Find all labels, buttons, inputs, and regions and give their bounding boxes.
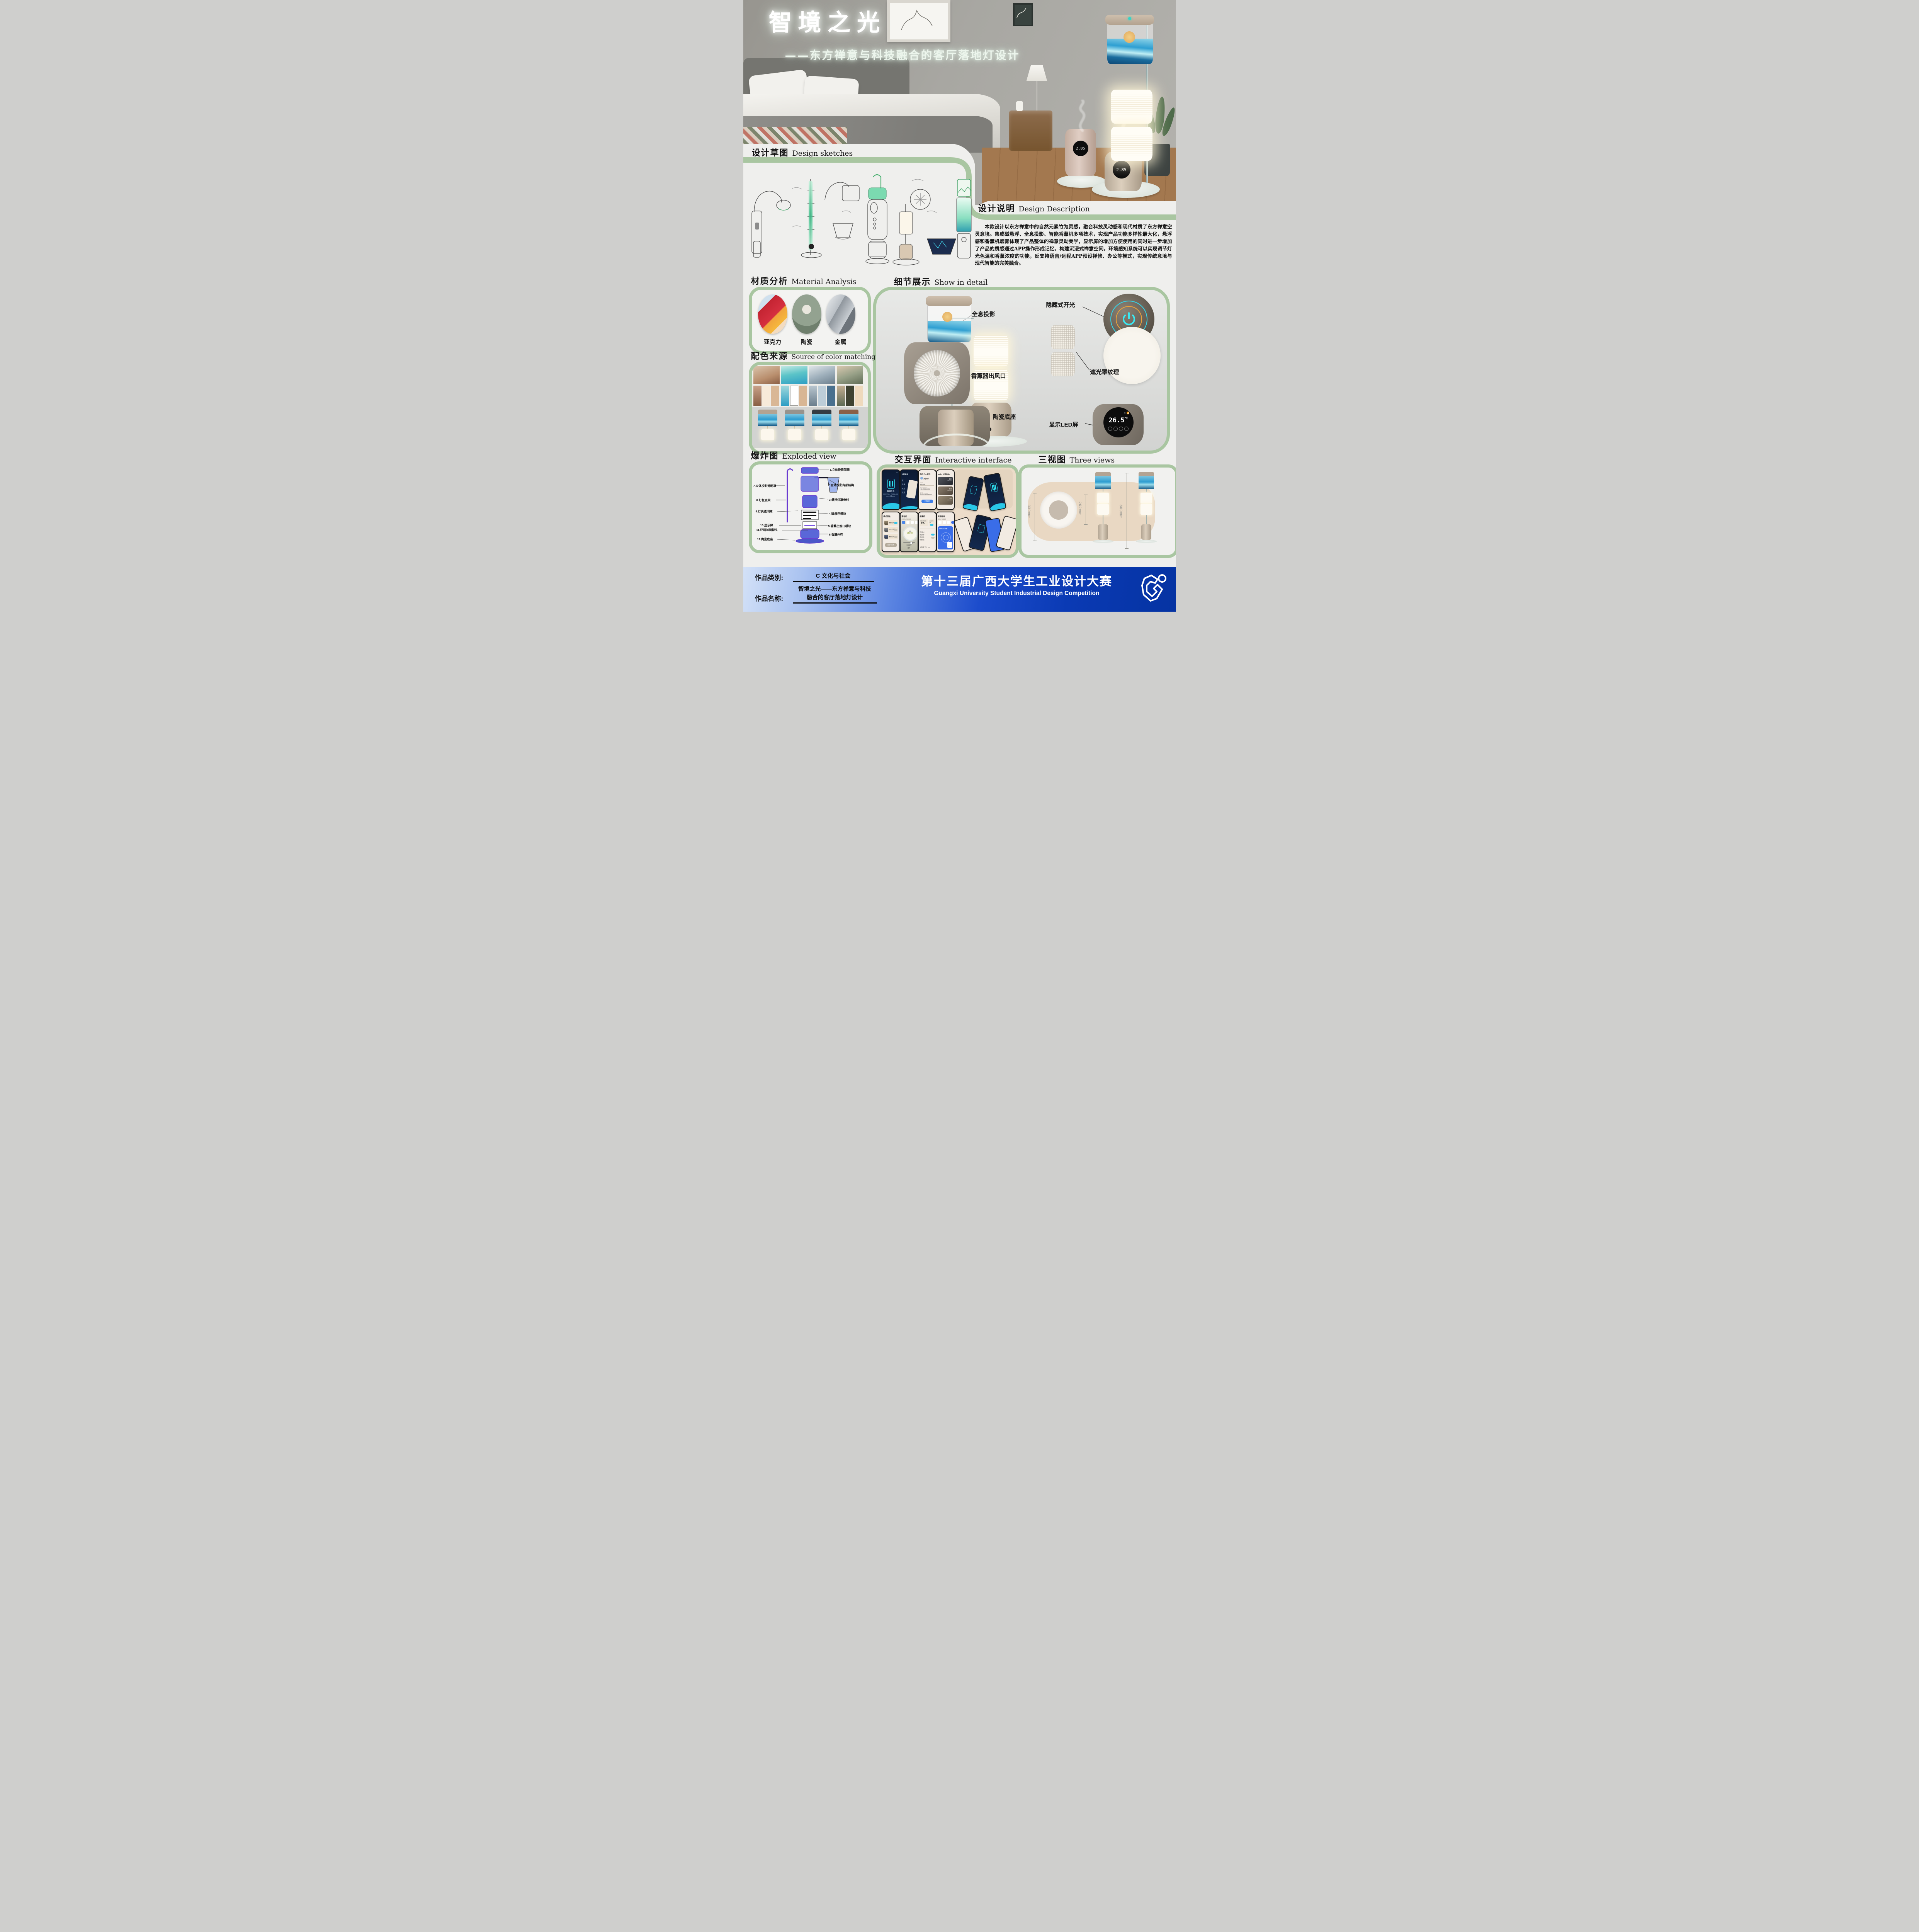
part-12: 12.陶瓷底座 [757,537,773,541]
room-card: 客厅 4 Devices [938,477,953,485]
swatch [790,386,798,406]
aroma-mode-rows: 工作模式感应喷香定时喷香喷香浓度 [920,531,925,541]
views-header: 三视图 Three views [1039,453,1115,465]
shade-texture-cylinder [1051,325,1075,349]
dim-330mm: 330mm [1027,505,1031,519]
aroma-title: 香薰机 [920,515,925,518]
swatch [827,386,835,406]
detail-holo-cylinder [927,301,971,342]
competition-title-en: Guangxi University Student Industrial De… [901,590,1133,597]
profile-title: 我的个人资料 [920,473,931,476]
radar-panel: 搜索附近的设备... Mi Cam [938,526,953,549]
detail-shade-upper [974,335,1008,366]
colors-title-zh: 配色来源 [751,349,788,362]
detail-label-aroma-outlet: 香薰器出风口 [971,372,1006,380]
material-label-acrylic: 亚克力 [758,338,787,346]
field-value: +98-19698612368 [920,488,934,490]
poster-title: 智境之光 [769,4,886,37]
phone-collage-top [955,469,1013,509]
description-title-zh: 设计说明 [978,202,1015,214]
lamp-shade-upper [1111,90,1152,124]
interface-title-zh: 交互界面 [895,453,932,465]
detail-label-shade-texture: 遮光罩纹理 [1090,368,1119,376]
poster-subtitle: ——东方禅意与科技融合的客厅落地灯设计 [785,46,1020,63]
details-panel: ☀ 📶 26.5℃ 全息投影 隐藏式开光 香薰器出风口 遮光罩纹理 陶瓷底座 显… [873,287,1170,454]
app-screen-home: Hello, 大猛同学! 客厅 4 Devices 卧室 4 Devices 书… [936,469,955,510]
exploded-header: 爆炸图 Exploded view [751,449,836,461]
bamboo-logo-icon [887,479,895,489]
swatch [846,386,854,406]
part-8: 8.灯杠支架 [756,498,771,502]
name-label: 作品名称: [755,593,784,603]
poster-root: 2.85 2.85 智境之光 ——东方禅意与科技融合的客厅落地灯设计 设计草图 … [743,0,1176,612]
devices-sub: 共有4个源器件 [938,518,946,520]
swatch-photo [809,386,817,406]
category-value: C 文化与社会 [793,571,874,580]
app-name: 智镜之光 [882,490,899,493]
color-temp-dial: 色温 3500K [903,526,918,541]
part-5: 5.香薰出烟口模块 [828,524,852,528]
device-icon-row [938,521,954,524]
phone-collage-bottom [955,512,1013,551]
lamp-variant-gray [785,410,804,440]
ceramic-base-closeup [920,406,990,446]
material-label-metal: 金属 [826,338,855,346]
color-photo-sea [781,366,807,384]
table-lamp-rod [1037,81,1037,111]
interface-header: 交互界面 Interactive interface [895,453,1012,465]
vase [1016,101,1023,111]
materials-title-en: Material Analysis [792,277,857,286]
detail-top-cap [926,296,972,306]
dim-line-330 [1035,493,1035,541]
auto-label: 自动 [901,547,918,549]
details-title-en: Show in detail [935,278,988,287]
color-photo-valley [837,366,863,384]
sketches-title-zh: 设计草图 [752,146,789,158]
app-screen-aroma: 香薰机 室内空气质量 80% 设备开关 ON 工作模式感应喷香定时喷香喷香浓度 … [918,512,937,552]
part-1: 1.立体投影顶盖 [830,468,850,472]
lamp-variant-beige [758,410,777,440]
avatar [920,477,923,480]
swatch [855,386,863,406]
competition-logo [1134,571,1169,607]
work-name-line2: 融合的客厅落地灯设计 [793,593,877,601]
swatch [762,386,770,406]
led-status-icons: ☀ 📶 [1107,412,1130,415]
profile-submit-button: 完成编辑 [921,500,933,503]
app-tagline2: 禅意与科技的世界 [883,496,899,497]
menu-items: 家设备成员设置 [902,479,905,495]
devices-title: 有源器件 [938,515,945,518]
collage-phone-dark [983,473,1006,512]
led-display-device: ☀ 📶 26.5℃ [1093,404,1144,445]
details-header: 细节展示 Show in detail [894,275,988,287]
views-title-en: Three views [1070,456,1115,464]
mode-row: 办公/学习模式 [884,527,898,532]
mist-count: 今日喷雾（次） 80 [920,546,930,548]
part-3: 3.悬挂灯罩电线 [829,498,849,502]
device-icon-row [902,521,918,524]
home-greeting: Hello, 大猛同学! [938,473,950,476]
table-lamp [1027,65,1047,81]
led-temperature: 26.5℃ [1103,417,1134,424]
display-value: 2.85 [1116,167,1127,172]
hologram-sun [1124,31,1135,43]
detail-label-hidden-switch: 隐藏式开光 [1046,301,1075,309]
menu-user: 大猛同学 [902,473,908,476]
colors-box [749,362,871,454]
part-10: 10.显示屏 [760,523,773,527]
skip-link: SKIP [896,471,899,473]
exploded-title-en: Exploded view [782,452,836,461]
shade-texture-cylinder [1051,352,1075,376]
aroma-display-small: 2.85 [1073,141,1088,156]
base-display: 2.85 [1113,161,1130,179]
power-icon [1122,311,1136,327]
sketches-header: 设计草图 Design sketches [752,146,853,158]
name-underline [793,602,877,604]
modes-custom-button: 自定义设置 [885,543,897,547]
material-ceramic-image [792,294,821,334]
dim-line-800 [1127,473,1127,549]
part-7: 7.立体投影透明罩 [753,484,777,488]
menu-wave [900,506,918,510]
swatch-group-3 [809,386,835,406]
brightness-slider [903,542,915,543]
details-title-zh: 细节展示 [894,275,931,287]
steam [1067,100,1098,132]
swatch [818,386,826,406]
color-photo-desert [753,366,780,384]
splash-wave [882,503,900,510]
footer-band: 作品类别: C 文化与社会 作品名称: 智境之光——东方禅意与科技 融合的客厅落… [743,567,1176,612]
sketches-title-en: Design sketches [792,149,853,158]
color-variants-bg [752,407,868,448]
app-screen-modes: 模式预设 禅修模式 办公/学习模式 娱乐模式 自定义设置 [882,512,900,552]
room-card: 书房 4 Devices [938,496,953,505]
lamp-title: 落地灯 [902,515,907,518]
wall-art-light [887,0,950,42]
dim-262mm: 262mm [1078,502,1082,516]
wall-art-dark [1013,3,1033,26]
part-6: 6.香薰外壳 [829,532,843,537]
collage-phone-dark [962,476,984,511]
views-title-zh: 三视图 [1039,453,1066,465]
swatch-photo [781,386,789,406]
material-acrylic-image [758,294,787,334]
side-view [1136,472,1157,549]
front-view [1093,472,1113,549]
aroma-outlet-closeup [904,342,970,404]
material-label-ceramic: 陶瓷 [792,338,821,346]
lamp-sub: 总共有4个源器件 [902,518,911,520]
wood-stool [1009,111,1052,151]
touch-power-dot [1128,17,1131,20]
holographic-cylinder [1107,20,1153,64]
category-underline [793,581,874,582]
app-screen-menu: 大猛同学 家设备成员设置 [900,469,918,510]
swatch [799,386,807,406]
three-views-panel: 330mm 262mm 800mm [1018,464,1176,558]
top-view [1040,492,1077,529]
field-value: 2840541880@qq.com [920,493,934,495]
field-value: 大猛同学 [920,483,934,486]
swatch-group-4 [837,386,863,406]
app-screen-lamp: 落地灯 总共有4个源器件 色温 3500K 亮度调节 自动 [900,512,918,552]
material-metal-image [826,294,855,334]
modes-title: 模式预设 [884,515,891,518]
part-11: 11.环境监测探头 [756,528,778,532]
device-switch-card: 设备开关 ON [929,519,935,526]
color-photo-rocks [809,366,835,384]
dim-800mm: 800mm [1119,505,1123,519]
display-value: 2.85 [1076,146,1085,151]
room-card: 卧室 4 Devices [938,486,953,495]
design-sketches-drawing [746,165,972,274]
swatch-photo [837,386,845,406]
description-header: 设计说明 Design Description [978,202,1090,214]
category-label: 作品类别: [755,572,784,582]
profile-name: 大猛同学 [924,478,929,480]
part-2: 2.立体投影内部结构 [828,484,862,487]
materials-box: 亚克力 陶瓷 金属 [749,287,871,354]
app-screen-splash: SKIP 智镜之光 您只需要滑动一下就能进入智能家居 禅意与科技的世界 [882,469,900,510]
air-quality-card: 室内空气质量 80% [920,519,928,526]
description-body: 本款设计以东方禅意中的自然元素竹为灵感，融合科技灵动感和现代材质了东方禅意空灵意… [975,223,1172,267]
detail-label-led-screen: 显示LED屏 [1049,420,1078,429]
lamp-variant-brown [839,410,858,440]
swatch-photo [753,386,761,406]
lamp-shade-lower [1111,127,1152,161]
app-screen-devices: 有源器件 共有4个源器件 搜索附近的设备... Mi Cam [936,512,955,552]
description-title-en: Design Description [1019,205,1090,213]
materials-title-zh: 材质分析 [751,274,788,287]
menu-card [906,480,918,498]
app-screen-profile: 我的个人资料 大猛同学 Name 大猛同学 Phone Number +98-1… [918,469,937,510]
detail-label-hologram: 全息投影 [972,310,995,318]
exploded-diagram [752,464,863,544]
competition-title-zh: 第十三届广西大学生工业设计大赛 [901,571,1133,589]
exploded-title-zh: 爆炸图 [751,449,779,461]
interface-title-en: Interactive interface [935,456,1012,464]
dim-line-262 [1086,495,1086,525]
interface-panel: SKIP 智镜之光 您只需要滑动一下就能进入智能家居 禅意与科技的世界 大猛同学… [877,464,1019,558]
mode-row: 禅修模式 [884,520,898,526]
colors-title-en: Source of color matching [792,353,876,361]
mode-row: 娱乐模式 [884,534,898,539]
lamp-variant-dark [812,410,831,440]
colors-header: 配色来源 Source of color matching [751,349,876,362]
part-9: 9.灯具透明罩 [756,509,773,514]
swatch-group-1 [753,386,779,406]
slider-label: 亮度调节 [901,544,918,546]
part-4: 4.磁悬浮模块 [829,512,846,516]
swatch-group-2 [781,386,807,406]
materials-header: 材质分析 Material Analysis [751,274,857,287]
led-buttons [1108,427,1129,431]
detail-label-ceramic-base: 陶瓷底座 [993,413,1016,421]
work-name-line1: 智境之光——东方禅意与科技 [793,585,877,593]
exploded-box: 1.立体投影顶盖 2.立体投影内部结构 3.悬挂灯罩电线 4.磁悬浮模块 5.香… [749,461,872,553]
swatch [771,386,779,406]
